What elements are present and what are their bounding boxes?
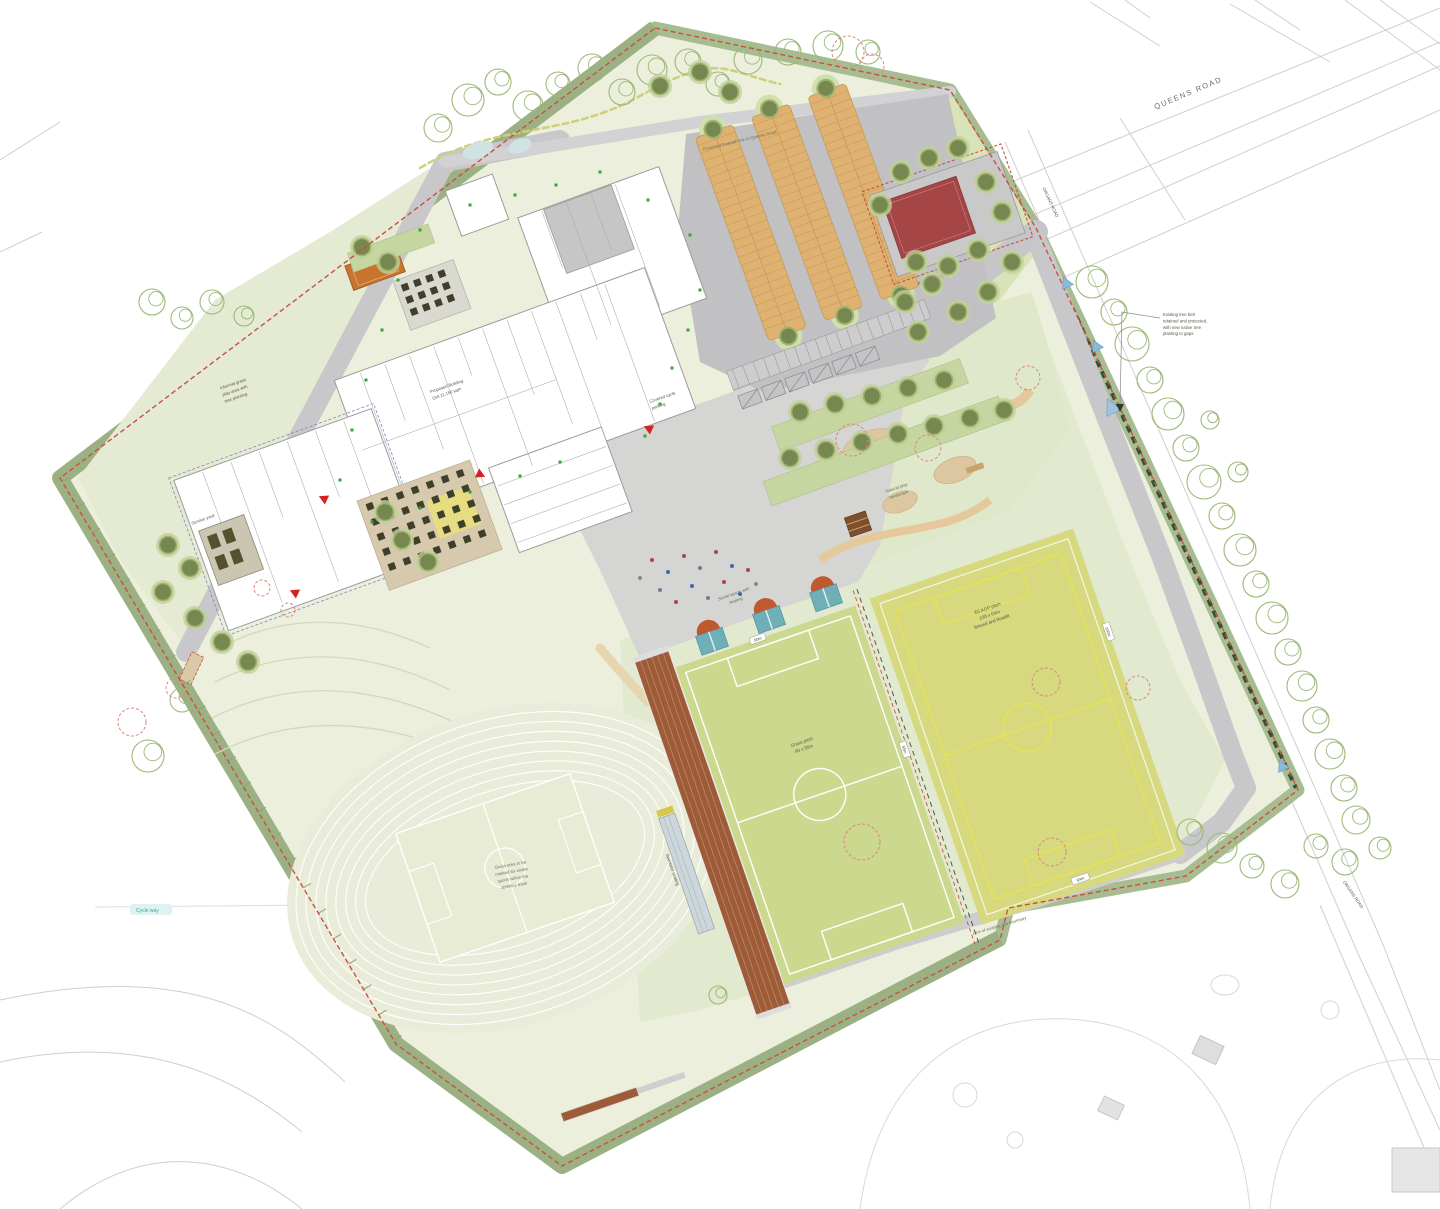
tree-icon xyxy=(182,560,199,577)
seat-dot xyxy=(666,570,670,574)
door-marker xyxy=(599,171,602,174)
tree-icon xyxy=(996,402,1013,419)
tree-icon xyxy=(1341,778,1355,792)
door-marker xyxy=(469,491,472,494)
seat-dot xyxy=(682,554,686,558)
door-marker xyxy=(339,479,342,482)
tree-icon xyxy=(377,504,394,521)
tree-icon xyxy=(893,164,910,181)
tree-icon xyxy=(1004,254,1021,271)
tree-icon xyxy=(980,284,997,301)
seat-dot xyxy=(730,564,734,568)
tree-icon xyxy=(1342,852,1356,866)
tree-icon xyxy=(179,309,191,321)
seat-dot xyxy=(714,550,718,554)
door-marker xyxy=(419,507,422,510)
tree-icon xyxy=(1285,642,1299,656)
tree-icon xyxy=(692,64,709,81)
tree-icon xyxy=(495,72,509,86)
indicative-tree-icon xyxy=(118,708,146,736)
tree-icon xyxy=(924,276,941,293)
site-plan-canvas: Floodlit MUGA 35 x 20m Grass area to be … xyxy=(0,0,1440,1209)
tree-icon xyxy=(464,87,482,105)
door-marker xyxy=(644,435,647,438)
tree-icon xyxy=(155,584,172,601)
tree-icon xyxy=(1236,537,1254,555)
tree-icon xyxy=(1208,413,1218,423)
door-marker xyxy=(371,521,374,524)
door-marker xyxy=(365,379,368,382)
tree-icon xyxy=(1249,856,1262,869)
tree-icon xyxy=(354,239,371,256)
tree-icon xyxy=(1164,401,1182,419)
svg-text:Existing tree belt: Existing tree belt xyxy=(1163,312,1196,317)
svg-text:with new native tree: with new native tree xyxy=(1163,325,1202,330)
door-marker xyxy=(351,429,354,432)
door-marker xyxy=(687,329,690,332)
tree-icon xyxy=(864,388,881,405)
tree-icon xyxy=(149,292,163,306)
tree-icon xyxy=(1236,464,1247,475)
door-marker xyxy=(419,229,422,232)
door-marker xyxy=(689,234,692,237)
tree-icon xyxy=(818,442,835,459)
cycle-way-label: Cycle way xyxy=(130,904,172,915)
svg-text:Cycle way: Cycle way xyxy=(136,908,159,914)
east-road-label-upper: ORGANS ROAD xyxy=(1042,187,1060,218)
tree-icon xyxy=(1326,742,1343,759)
tree-icon xyxy=(1282,873,1297,888)
tree-icon xyxy=(1219,506,1233,520)
tree-icon xyxy=(824,34,841,51)
door-marker xyxy=(519,475,522,478)
tree-icon xyxy=(722,84,739,101)
tree-icon xyxy=(555,74,568,87)
tree-icon xyxy=(792,404,809,421)
tree-icon xyxy=(872,197,889,214)
tree-icon xyxy=(1353,809,1368,824)
tree-icon xyxy=(950,304,967,321)
tree-icon xyxy=(962,410,979,427)
tree-icon xyxy=(940,258,957,275)
tree-icon xyxy=(394,532,411,549)
door-marker xyxy=(699,289,702,292)
seat-dot xyxy=(722,580,726,584)
tree-icon xyxy=(160,537,177,554)
tree-icon xyxy=(1377,839,1389,851)
tree-icon xyxy=(936,372,953,389)
tree-icon xyxy=(1111,302,1125,316)
tree-icon xyxy=(240,654,257,671)
svg-text:planting to gaps: planting to gaps xyxy=(1163,331,1193,336)
tree-icon xyxy=(950,140,967,157)
tree-icon xyxy=(652,78,669,95)
door-marker xyxy=(469,204,472,207)
tree-icon xyxy=(978,174,995,191)
tree-icon xyxy=(435,117,450,132)
seat-dot xyxy=(706,596,710,600)
door-marker xyxy=(555,184,558,187)
door-marker xyxy=(671,367,674,370)
door-marker xyxy=(397,279,400,282)
tree-icon xyxy=(1088,269,1106,287)
door-marker xyxy=(647,199,650,202)
seat-dot xyxy=(650,558,654,562)
tree-icon xyxy=(187,610,204,627)
tree-icon xyxy=(1128,330,1147,349)
tree-icon xyxy=(1147,370,1161,384)
tree-icon xyxy=(897,294,914,311)
tree-icon xyxy=(926,418,943,435)
tree-icon xyxy=(420,554,437,571)
tree-icon xyxy=(910,324,927,341)
tree-icon xyxy=(827,396,844,413)
tree-icon xyxy=(994,204,1011,221)
tree-icon xyxy=(524,94,541,111)
door-marker xyxy=(381,329,384,332)
seat-dot xyxy=(746,568,750,572)
seat-dot xyxy=(698,566,702,570)
seat-dot xyxy=(690,584,694,588)
tree-icon xyxy=(970,242,987,259)
door-marker xyxy=(559,461,562,464)
tree-icon xyxy=(1298,674,1315,691)
door-marker xyxy=(514,194,517,197)
masterplan-svg: Floodlit MUGA 35 x 20m Grass area to be … xyxy=(0,0,1440,1209)
tree-icon xyxy=(900,380,917,397)
tree-icon xyxy=(1313,836,1326,849)
tree-icon xyxy=(782,450,799,467)
seat-dot xyxy=(638,576,642,580)
tree-icon xyxy=(214,634,231,651)
tree-icon xyxy=(1183,438,1197,452)
seat-dot xyxy=(658,588,662,592)
seat-dot xyxy=(754,582,758,586)
tree-icon xyxy=(1268,605,1286,623)
tree-icon xyxy=(1200,468,1219,487)
tree-icon xyxy=(921,150,938,167)
tree-icon xyxy=(1253,574,1267,588)
tree-icon xyxy=(144,743,162,761)
tree-icon xyxy=(908,254,925,271)
queens-road-label: QUEENS ROAD xyxy=(1153,75,1224,112)
tree-icon xyxy=(1313,710,1327,724)
svg-text:retained and protected,: retained and protected, xyxy=(1163,318,1207,323)
seat-dot xyxy=(674,600,678,604)
tree-icon xyxy=(890,426,907,443)
tree-icon xyxy=(380,254,397,271)
